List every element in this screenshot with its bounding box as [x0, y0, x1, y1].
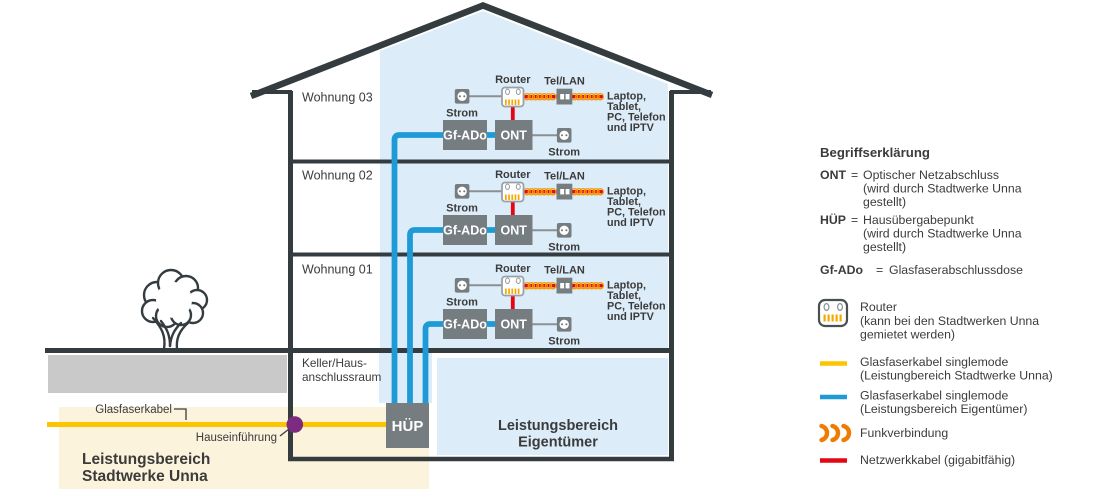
svg-text:Glasfaserkabel singlemode: Glasfaserkabel singlemode — [860, 355, 1008, 369]
svg-text:Leistungsbereich: Leistungsbereich — [498, 418, 618, 434]
gfado-box-label: Gf-ADo — [443, 224, 487, 238]
svg-text:Funkverbindung: Funkverbindung — [860, 426, 948, 440]
svg-text:Router: Router — [860, 300, 897, 314]
strom-label: Strom — [548, 336, 580, 348]
lan-port — [566, 189, 570, 194]
tel-lan-label: Tel/LAN — [544, 171, 585, 183]
svg-text:gestellt): gestellt) — [863, 195, 906, 209]
strom-label: Strom — [446, 297, 478, 309]
legend-cable-red: Netzwerkkabel (gigabitfähig) — [820, 453, 1015, 467]
svg-text:(kann bei den Stadtwerken Unna: (kann bei den Stadtwerken Unna — [860, 314, 1039, 328]
strom-label: Strom — [446, 108, 478, 120]
floor-label-wohnung02: Wohnung 02 — [302, 169, 373, 183]
tel-lan-box — [557, 89, 573, 105]
legend-router-entry: Router (kann bei den Stadtwerken Unna ge… — [819, 300, 1039, 342]
svg-text:(Leistungbereich Stadtwerke Un: (Leistungbereich Stadtwerke Unna) — [860, 369, 1053, 383]
tel-port — [560, 283, 564, 288]
equals-sign: = — [851, 168, 858, 182]
fiber-installation-diagram: Router Tel/LAN Strom Strom Gf-ADo ONT La… — [0, 0, 1107, 500]
strom-label: Strom — [548, 147, 580, 159]
ont-box-label: ONT — [501, 129, 528, 143]
tel-lan-label: Tel/LAN — [544, 76, 585, 88]
legend-cable-blue: Glasfaserkabel singlemode (Leistungsbere… — [820, 389, 1027, 417]
legend-entry-gfado: Gf-ADo = Glasfaserabschlussdose — [820, 263, 1023, 277]
gfado-box-label: Gf-ADo — [443, 318, 487, 332]
gfado-box-label: Gf-ADo — [443, 129, 487, 143]
legend-title: Begriffserklärung — [820, 145, 930, 160]
strom-label: Strom — [446, 203, 478, 215]
diagram-canvas: Router Tel/LAN Strom Strom Gf-ADo ONT La… — [0, 0, 1107, 500]
tel-lan-box — [557, 184, 573, 200]
power-outlet-icon — [455, 184, 470, 199]
tel-port — [560, 189, 564, 194]
power-outlet-icon — [557, 223, 572, 238]
router-icon — [502, 183, 524, 202]
router-label: Router — [495, 74, 531, 86]
tree-icon — [142, 270, 207, 349]
svg-text:gestellt): gestellt) — [863, 240, 906, 254]
legend-term: HÜP — [820, 212, 846, 227]
svg-text:(wird durch Stadtwerke Unna: (wird durch Stadtwerke Unna — [863, 227, 1022, 241]
equals-sign: = — [876, 263, 883, 277]
svg-text:und IPTV: und IPTV — [607, 217, 655, 229]
glasfaserkabel-label: Glasfaserkabel — [95, 404, 172, 416]
ont-box-label: ONT — [501, 318, 528, 332]
power-outlet-icon — [557, 128, 572, 143]
router-label: Router — [495, 263, 531, 275]
router-label: Router — [495, 169, 531, 181]
huep-box-label: HÜP — [392, 418, 424, 435]
strom-label: Strom — [548, 242, 580, 254]
svg-text:(wird durch Stadtwerke Unna: (wird durch Stadtwerke Unna — [863, 182, 1022, 196]
legend-entry-ont: ONT = Optischer Netzabschluss (wird durc… — [820, 168, 1022, 209]
basement-label-line1: Keller/Haus- — [302, 356, 367, 370]
svg-text:und IPTV: und IPTV — [607, 122, 655, 134]
tel-lan-box — [557, 278, 573, 294]
legend-entry-huep: HÜP = Hausübergabepunkt (wird durch Stad… — [820, 212, 1022, 254]
lan-port — [566, 283, 570, 288]
tel-lan-label: Tel/LAN — [544, 265, 585, 277]
svg-text:Eigentümer: Eigentümer — [518, 435, 598, 451]
tel-port — [560, 94, 564, 99]
house-entry-point-dot — [287, 416, 304, 433]
svg-text:Stadtwerke Unna: Stadtwerke Unna — [82, 468, 208, 485]
svg-text:gemietet werden): gemietet werden) — [860, 328, 955, 342]
svg-text:Glasfaserkabel singlemode: Glasfaserkabel singlemode — [860, 389, 1008, 403]
lan-port — [566, 94, 570, 99]
svg-text:und IPTV: und IPTV — [607, 311, 655, 323]
legend: Begriffserklärung ONT = Optischer Netzab… — [819, 145, 1053, 467]
power-outlet-icon — [557, 317, 572, 332]
basement-label-line2: anschlussraum — [302, 370, 382, 384]
svg-text:Hausübergabepunkt: Hausübergabepunkt — [863, 213, 974, 227]
svg-text:Optischer Netzabschluss: Optischer Netzabschluss — [863, 168, 999, 182]
router-icon — [502, 277, 524, 296]
router-icon — [502, 88, 524, 107]
legend-cable-yellow: Glasfaserkabel singlemode (Leistungberei… — [820, 355, 1053, 383]
power-outlet-icon — [455, 89, 470, 104]
ont-box-label: ONT — [501, 224, 528, 238]
svg-text:Leistungsbereich: Leistungsbereich — [82, 451, 210, 468]
svg-text:Netzwerkkabel (gigabitfähig): Netzwerkkabel (gigabitfähig) — [860, 453, 1015, 467]
floor-label-wohnung03: Wohnung 03 — [302, 91, 373, 105]
power-outlet-icon — [455, 278, 470, 293]
hauseinfuehrung-label: Hauseinführung — [196, 432, 277, 444]
legend-term: Gf-ADo — [820, 263, 864, 277]
svg-text:Glasfaserabschlussdose: Glasfaserabschlussdose — [889, 263, 1023, 277]
equals-sign: = — [851, 213, 858, 227]
legend-term: ONT — [820, 168, 846, 182]
zone-stadtwerke-title: Leistungsbereich Stadtwerke Unna — [82, 451, 210, 485]
router-icon — [819, 300, 847, 326]
funk-arcs-icon — [822, 426, 850, 440]
soil-cross-section — [48, 355, 287, 393]
legend-funk: Funkverbindung — [822, 426, 949, 440]
floor-label-wohnung01: Wohnung 01 — [302, 263, 373, 277]
svg-text:(Leistungsbereich Eigentümer): (Leistungsbereich Eigentümer) — [860, 402, 1027, 416]
